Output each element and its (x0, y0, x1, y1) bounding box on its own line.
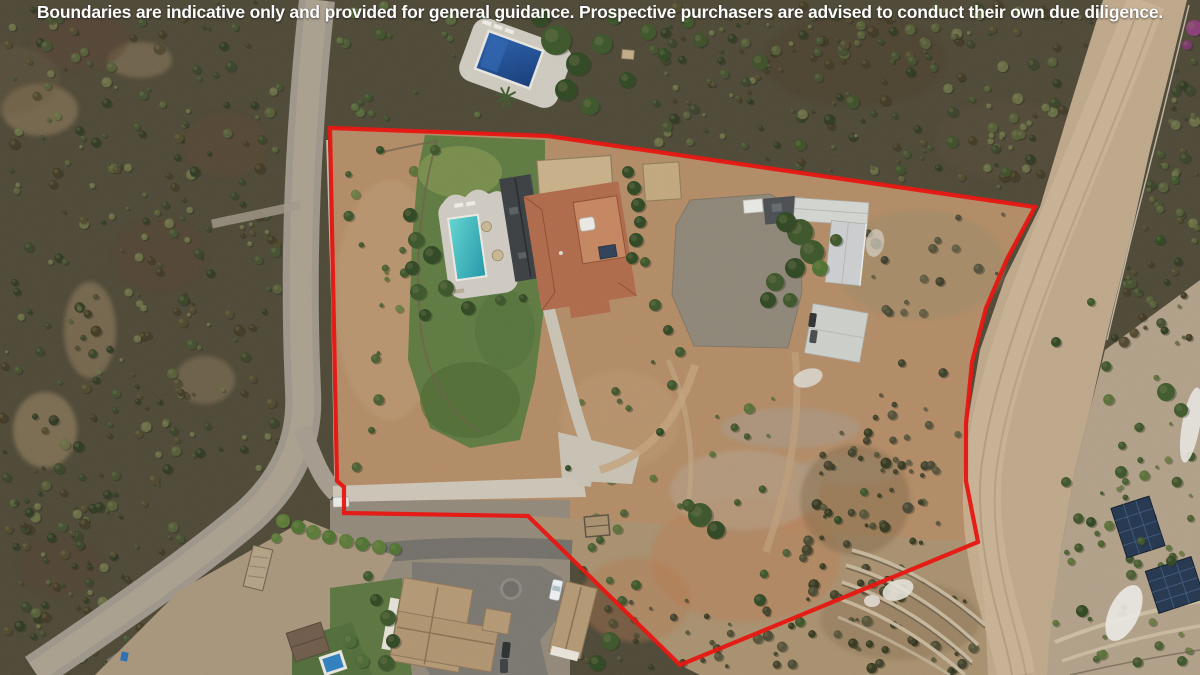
aerial-photo: Boundaries are indicative only and provi… (0, 0, 1200, 675)
photo-grain (0, 0, 1200, 675)
aerial-scene (0, 0, 1200, 675)
